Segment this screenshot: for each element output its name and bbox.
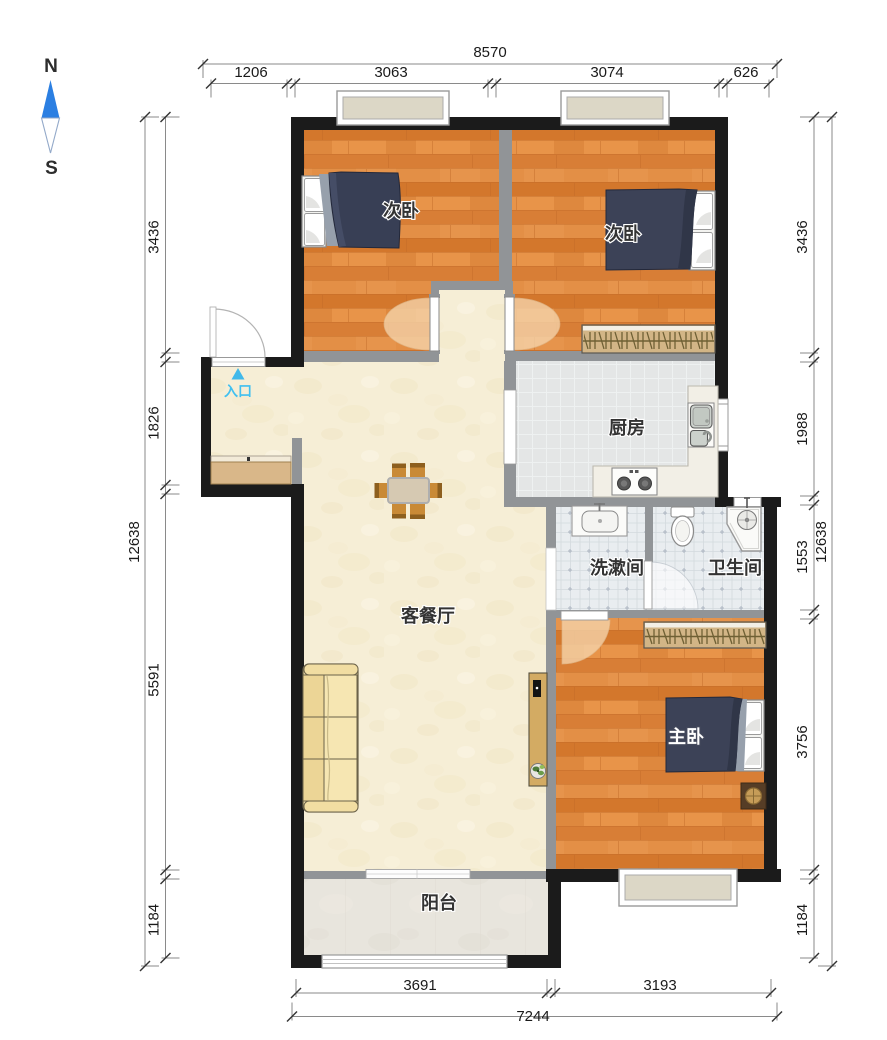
svg-text:3756: 3756 <box>794 725 811 758</box>
svg-text:1826: 1826 <box>146 406 163 439</box>
svg-text:3063: 3063 <box>374 64 407 81</box>
svg-text:3193: 3193 <box>643 977 676 994</box>
svg-text:1184: 1184 <box>794 904 811 936</box>
svg-text:7244: 7244 <box>516 1008 549 1025</box>
svg-text:次卧: 次卧 <box>605 223 641 244</box>
svg-text:1184: 1184 <box>146 904 163 936</box>
svg-text:1988: 1988 <box>794 412 811 445</box>
svg-text:厨房: 厨房 <box>609 417 645 438</box>
svg-text:主卧: 主卧 <box>668 726 704 747</box>
svg-text:阳台: 阳台 <box>421 892 457 913</box>
svg-text:客餐厅: 客餐厅 <box>401 605 455 626</box>
svg-text:8570: 8570 <box>473 44 506 61</box>
svg-text:5591: 5591 <box>146 663 163 696</box>
svg-text:12638: 12638 <box>813 521 830 563</box>
svg-text:S: S <box>45 158 58 179</box>
svg-text:3436: 3436 <box>146 220 163 253</box>
svg-text:3691: 3691 <box>403 977 436 994</box>
svg-text:入口: 入口 <box>224 383 252 399</box>
svg-text:卫生间: 卫生间 <box>708 557 762 578</box>
svg-text:3436: 3436 <box>794 220 811 253</box>
svg-text:N: N <box>44 56 58 77</box>
svg-text:1206: 1206 <box>234 64 267 81</box>
svg-text:3074: 3074 <box>590 64 623 81</box>
svg-text:次卧: 次卧 <box>383 200 419 221</box>
svg-text:626: 626 <box>733 64 758 81</box>
svg-text:1553: 1553 <box>794 540 811 573</box>
svg-text:洗漱间: 洗漱间 <box>590 557 644 578</box>
svg-text:12638: 12638 <box>126 521 143 563</box>
